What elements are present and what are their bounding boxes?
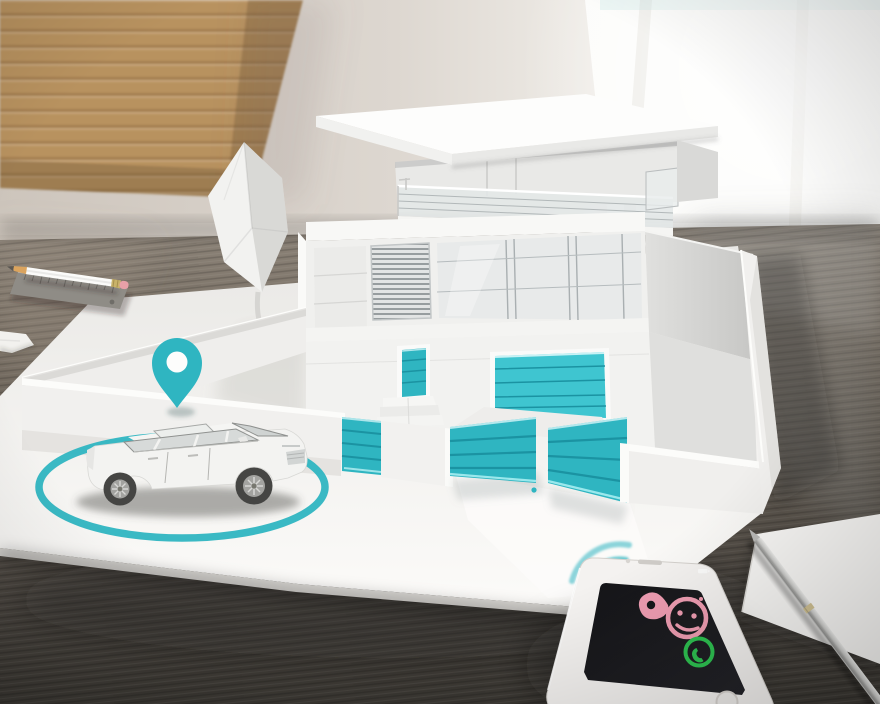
vignette-overlay (0, 0, 880, 704)
scene-3d-render (0, 0, 880, 704)
